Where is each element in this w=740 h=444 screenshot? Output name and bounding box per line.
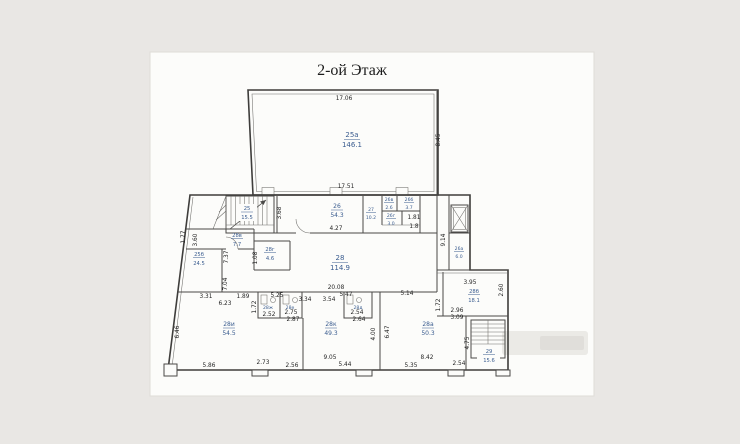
room-26a-area: 6.0 [455,254,462,260]
scan-smudge-dark [540,336,584,350]
dim-535: 5.35 [405,363,418,369]
room-28g-number: 28г [265,247,275,253]
dim-704: 7.04 [223,277,229,290]
room-28zh-number: 28ж [263,305,273,311]
room-28k-area: 49.3 [324,330,338,337]
pilaster [356,370,372,376]
room-28v-number: 28в [232,233,242,239]
room-28g-area: 4.6 [266,256,274,262]
dim-905: 9.05 [324,355,337,361]
room-28v-area: 7.7 [233,242,241,248]
room-28-number: 28 [336,254,345,262]
dim-647: 6.47 [385,325,391,338]
dim-331: 3.31 [200,294,213,300]
dim-26-left: 3.68 [277,206,283,219]
dim-254a: 2.54 [351,310,364,316]
dim-287: 2.87 [287,317,300,323]
dim-334: 3.34 [299,297,312,303]
room-26b-area: 3.7 [405,205,412,211]
room-28-area: 114.9 [330,264,350,272]
room-25b-area: 24.5 [193,261,205,267]
dim-623: 6.23 [219,301,232,307]
dim-172a: 1.72 [436,298,442,311]
page-title: 2-ой Этаж [317,62,388,79]
dim-646: 6.46 [175,325,181,338]
dim-842: 8.42 [421,355,434,361]
pilaster [262,188,274,195]
dim-256: 2.56 [286,363,299,369]
dim-hall-top: 17.06 [336,96,353,102]
room-26g-number: 26г [387,213,396,219]
room-27-area: 10.2 [366,215,376,221]
dim-273: 2.73 [257,360,270,366]
dim-28b-right: 2.60 [499,283,505,296]
dim-275: 2.75 [285,310,298,316]
room-29-area: 15.6 [483,358,495,364]
floor-plan-drawing: 2-ой Этаж 25а 146.1 17.06 8.45 17.51 25 … [0,0,740,444]
room-26-number: 26 [333,203,341,210]
room-26v-area: 2.6 [385,205,392,211]
dim-525: 5.25 [271,293,284,299]
room-28b-area: 18.1 [468,298,480,304]
dim-264: 2.64 [353,317,366,323]
dim-400: 4.00 [371,327,377,340]
room-26b-number: 26б [405,197,414,203]
room-27-number: 27 [368,207,374,213]
room-28a-area: 50.3 [421,330,435,337]
room-25-number: 25 [244,206,251,212]
dim-26-bottom: 4.27 [330,226,343,232]
room-26a-number: 26а [455,246,464,252]
room-28k-number: 28к [325,321,337,328]
room-26-area: 54.3 [330,212,344,219]
room-26v-number: 26в [385,197,394,203]
room-28i-number: 28и [223,321,235,328]
dim-586: 5.86 [203,363,216,369]
dim-475: 4.75 [465,336,471,349]
dim-cluster-181: 1.81 [408,215,421,221]
room-25a-area: 146.1 [342,141,362,149]
dim-177: 1.77 [181,230,187,243]
corner-pilaster [496,370,510,376]
dim-shaft-height: 9.14 [441,233,447,246]
dim-544: 5.44 [339,362,352,368]
room-29-number: 29 [486,349,493,355]
dim-28-bottom: 20.08 [328,285,345,291]
dim-547: 5.47 [340,292,353,298]
scanned-floor-plan-page: 2-ой Этаж 25а 146.1 17.06 8.45 17.51 25 … [0,0,740,444]
room-28a-number: 28а [422,321,434,328]
room-25b-number: 25б [194,252,204,258]
dim-514: 5.14 [401,291,414,297]
room-28b-number: 28б [469,289,479,295]
dim-737: 7.37 [224,250,230,263]
dim-28v-left: 3.60 [193,233,199,246]
dim-172b: 1.72 [252,300,258,313]
dim-254b: 2.54 [453,361,466,367]
dim-108: 1.08 [253,251,259,264]
dim-hall-bottom: 17.51 [338,184,355,190]
dim-28b-top: 3.95 [464,280,477,286]
dim-296: 2.96 [451,308,464,314]
pilaster [252,370,268,376]
pilaster [448,370,464,376]
dim-189: 1.89 [237,294,250,300]
room-26g-area: 3.0 [387,221,394,227]
dim-309: 3.09 [451,315,464,321]
corner-pilaster [164,364,177,376]
room-25a-number: 25а [345,131,358,139]
dim-cluster-18: 1.8 [409,224,419,230]
dim-354: 3.54 [323,297,336,303]
room-25-area: 15.5 [241,215,253,221]
pilaster [396,188,408,195]
room-28i-area: 54.5 [222,330,236,337]
dim-252: 2.52 [263,312,276,318]
